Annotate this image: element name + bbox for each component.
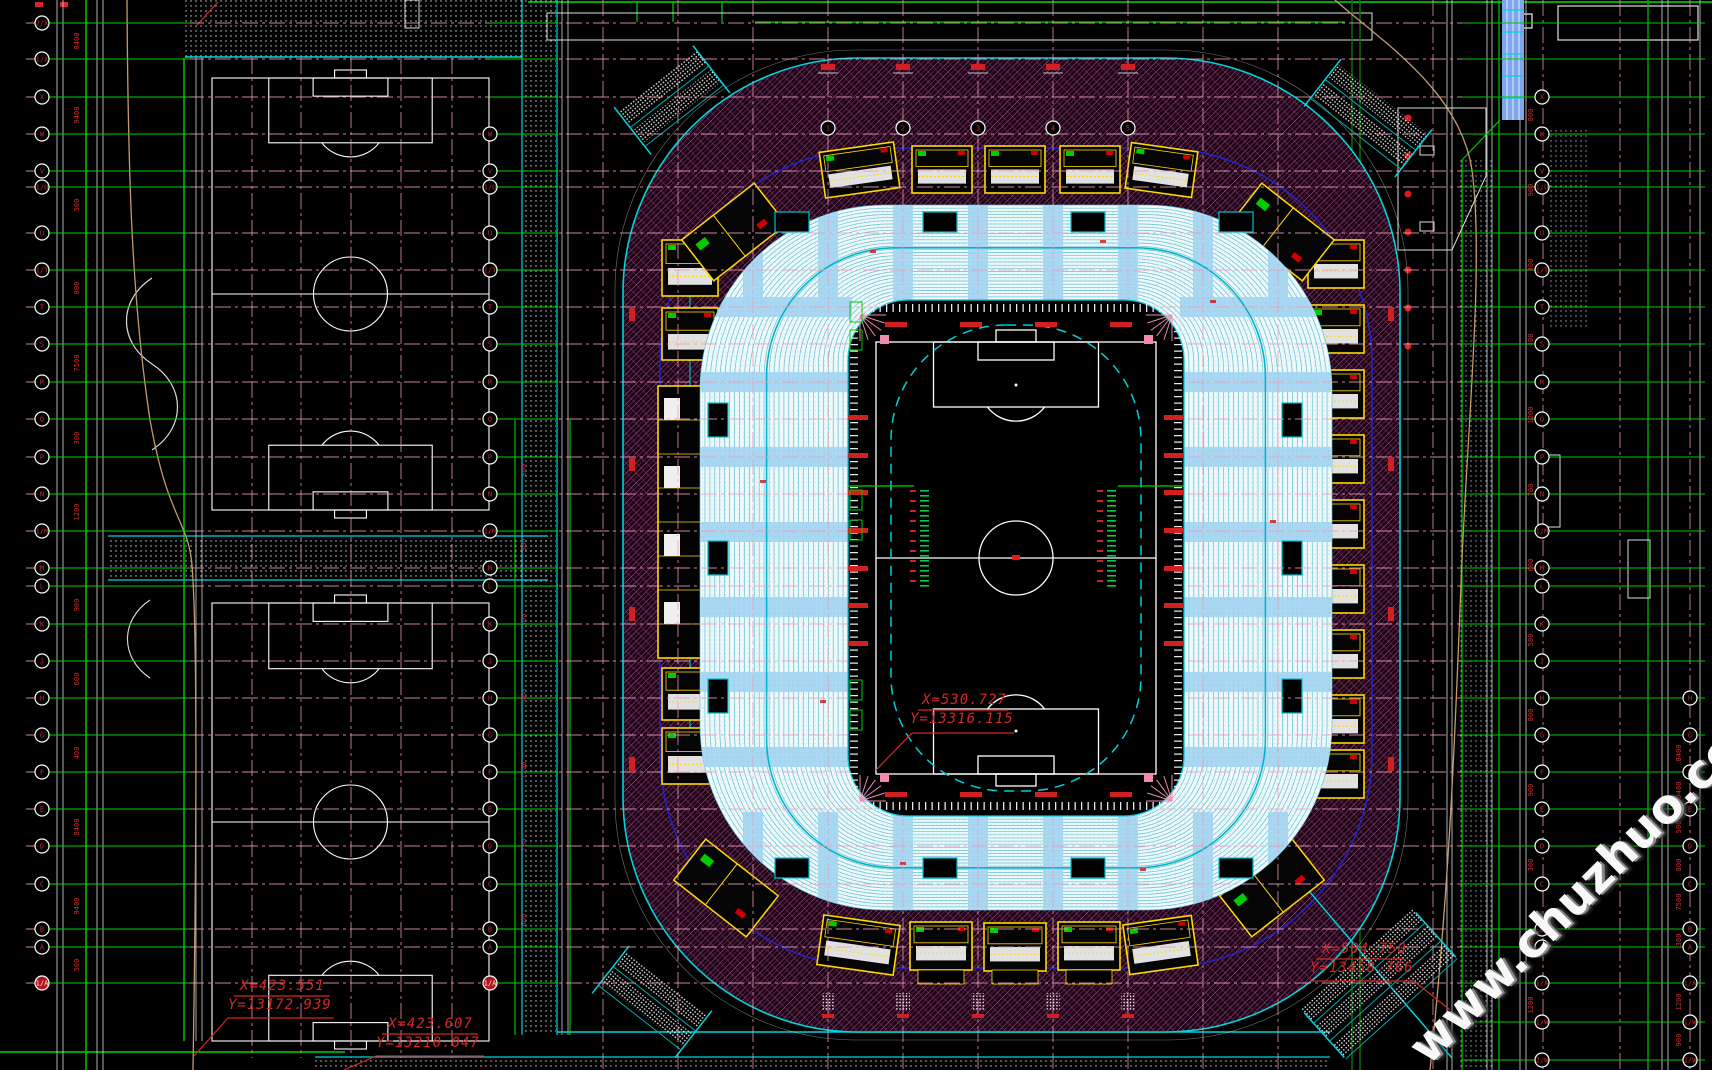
stair-block	[985, 146, 1045, 193]
svg-text:L: L	[1540, 583, 1544, 591]
svg-text:900: 900	[1527, 784, 1535, 797]
svg-text:1/T: 1/T	[1536, 267, 1549, 275]
svg-text:1/M: 1/M	[36, 528, 49, 536]
svg-text:1/W: 1/W	[1684, 1019, 1697, 1027]
svg-text:2/X: 2/X	[36, 20, 49, 28]
svg-text:700: 700	[1527, 484, 1535, 497]
coord-label-field-center: X=530.727 Y=13316.115	[922, 691, 1014, 729]
svg-text:S: S	[40, 341, 44, 349]
svg-text:U: U	[1540, 230, 1544, 238]
svg-text:U: U	[488, 230, 492, 238]
svg-text:H: H	[1688, 695, 1692, 703]
svg-text:C: C	[1540, 881, 1544, 889]
coord-label-southeast: X=504.750 Y=13458.766	[1322, 940, 1414, 978]
svg-text:D: D	[488, 843, 492, 851]
svg-text:C: C	[40, 881, 44, 889]
svg-text:Q: Q	[488, 416, 492, 424]
svg-text:1200: 1200	[1527, 997, 1535, 1014]
svg-text:9400: 9400	[73, 107, 81, 124]
svg-text:B: B	[40, 926, 44, 934]
svg-text:800: 800	[1675, 859, 1683, 872]
svg-text:S: S	[1540, 341, 1544, 349]
svg-text:300: 300	[73, 432, 81, 445]
svg-text:300: 300	[520, 614, 528, 627]
svg-text:U: U	[40, 230, 44, 238]
svg-text:1/A: 1/A	[1684, 980, 1697, 988]
svg-text:1200: 1200	[1527, 407, 1535, 424]
svg-text:P: P	[488, 454, 492, 462]
svg-text:800: 800	[1527, 709, 1535, 722]
svg-text:E: E	[488, 806, 492, 814]
svg-text:H: H	[40, 695, 44, 703]
svg-text:1/U: 1/U	[36, 184, 49, 192]
svg-text:P: P	[1540, 454, 1544, 462]
coord-y: Y=13458.766	[1310, 959, 1414, 978]
svg-text:7500: 7500	[73, 355, 81, 372]
svg-text:600: 600	[73, 673, 81, 686]
svg-text:1/X: 1/X	[36, 56, 49, 64]
coord-label-southwest: X=423.551 Y=13172.939	[240, 977, 332, 1015]
svg-text:J: J	[1540, 658, 1544, 666]
svg-text:L: L	[40, 583, 44, 591]
svg-text:L: L	[488, 583, 492, 591]
svg-text:D: D	[1540, 843, 1544, 851]
svg-text:900: 900	[520, 539, 528, 552]
svg-text:M: M	[1540, 565, 1544, 573]
svg-text:D: D	[40, 843, 44, 851]
coord-label-south: X=423.607 Y=13210.047	[388, 1015, 480, 1053]
svg-text:9400: 9400	[73, 898, 81, 915]
svg-text:1/U: 1/U	[1536, 184, 1549, 192]
svg-text:5: 5	[1126, 125, 1130, 133]
svg-text:400: 400	[1527, 334, 1535, 347]
svg-text:8400: 8400	[73, 33, 81, 50]
svg-text:2/W: 2/W	[1536, 1057, 1549, 1065]
svg-text:N: N	[40, 491, 44, 499]
svg-text:4: 4	[1051, 125, 1055, 133]
svg-text:E: E	[1540, 806, 1544, 814]
svg-text:F: F	[40, 769, 44, 777]
svg-text:1/W: 1/W	[1536, 1019, 1549, 1027]
svg-text:500: 500	[73, 959, 81, 972]
svg-text:600: 600	[520, 914, 528, 927]
svg-text:G: G	[40, 732, 44, 740]
svg-text:C: C	[1688, 881, 1692, 889]
svg-text:H: H	[1540, 695, 1544, 703]
svg-text:500: 500	[73, 199, 81, 212]
svg-text:M: M	[40, 565, 44, 573]
coord-y: Y=13210.047	[376, 1034, 480, 1053]
svg-text:J: J	[488, 658, 492, 666]
svg-text:3: 3	[976, 125, 980, 133]
svg-text:C: C	[488, 881, 492, 889]
svg-text:J: J	[40, 658, 44, 666]
svg-text:S: S	[488, 341, 492, 349]
cad-viewport: 2/X1/XXWV1/UU1/TTSRQPN1/MMLKJHGFEDCBA1/A…	[0, 0, 1712, 1070]
svg-text:F: F	[488, 769, 492, 777]
svg-text:500: 500	[1527, 634, 1535, 647]
svg-text:1/T: 1/T	[484, 267, 497, 275]
svg-text:8400: 8400	[73, 819, 81, 836]
svg-text:H: H	[488, 695, 492, 703]
svg-text:1200: 1200	[73, 504, 81, 521]
svg-text:1: 1	[826, 125, 830, 133]
svg-text:800: 800	[73, 282, 81, 295]
svg-text:B: B	[1688, 926, 1692, 934]
svg-text:400: 400	[73, 747, 81, 760]
svg-text:300: 300	[1527, 859, 1535, 872]
svg-text:1/A: 1/A	[484, 980, 497, 988]
svg-text:1/A: 1/A	[36, 980, 49, 988]
svg-text:1/U: 1/U	[484, 184, 497, 192]
stair-block	[1060, 146, 1120, 193]
coord-x: X=423.607	[388, 1015, 480, 1034]
coord-y: Y=13316.115	[910, 710, 1014, 729]
svg-text:B: B	[488, 926, 492, 934]
coord-x: X=530.727	[922, 691, 1014, 710]
svg-text:300: 300	[1675, 934, 1683, 947]
svg-text:1/M: 1/M	[1536, 528, 1549, 536]
svg-text:1/A: 1/A	[1536, 980, 1549, 988]
svg-text:2: 2	[901, 125, 905, 133]
svg-text:N: N	[1540, 491, 1544, 499]
svg-text:M: M	[488, 565, 492, 573]
stair-block	[817, 915, 900, 975]
svg-text:1200: 1200	[520, 762, 528, 779]
svg-text:1/M: 1/M	[484, 528, 497, 536]
svg-text:1/T: 1/T	[36, 267, 49, 275]
svg-text:1200: 1200	[1675, 994, 1683, 1011]
svg-text:Q: Q	[40, 416, 44, 424]
cad-site-plan: 2/X1/XXWV1/UU1/TTSRQPN1/MMLKJHGFEDCBA1/A…	[0, 0, 1712, 1070]
coord-x: X=504.750	[1322, 940, 1414, 959]
svg-text:E: E	[40, 806, 44, 814]
svg-text:900: 900	[1675, 1034, 1683, 1047]
svg-text:G: G	[1540, 732, 1544, 740]
svg-text:600: 600	[1527, 559, 1535, 572]
svg-text:N: N	[488, 491, 492, 499]
svg-text:900: 900	[1527, 184, 1535, 197]
svg-text:2/W: 2/W	[1684, 1057, 1697, 1065]
svg-text:900: 900	[73, 599, 81, 612]
svg-text:800: 800	[520, 464, 528, 477]
svg-text:300: 300	[1527, 259, 1535, 272]
coord-x: X=423.551	[240, 977, 332, 996]
svg-text:F: F	[1540, 769, 1544, 777]
svg-text:Q: Q	[1540, 416, 1544, 424]
svg-text:400: 400	[520, 689, 528, 702]
svg-text:G: G	[488, 732, 492, 740]
svg-text:7500: 7500	[1675, 894, 1683, 911]
svg-text:700: 700	[520, 839, 528, 852]
stadium-field	[848, 300, 1184, 816]
svg-text:G: G	[1688, 732, 1692, 740]
coord-y: Y=13172.939	[228, 996, 332, 1015]
svg-text:P: P	[40, 454, 44, 462]
stair-block	[819, 142, 900, 198]
svg-text:800: 800	[1527, 109, 1535, 122]
svg-text:D: D	[1688, 843, 1692, 851]
stair-block	[1123, 915, 1198, 974]
stair-block	[1125, 143, 1198, 198]
stair-block	[912, 146, 972, 193]
